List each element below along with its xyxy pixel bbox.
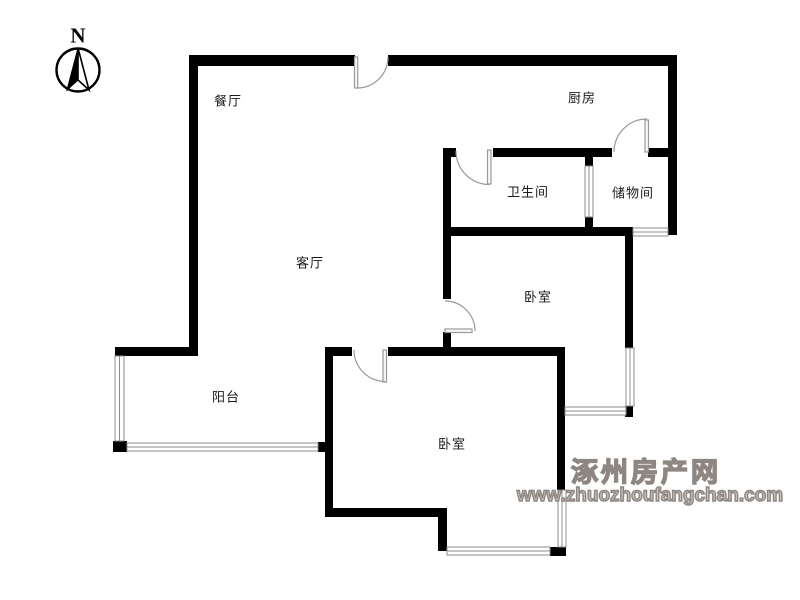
wall-balcony-top bbox=[115, 347, 198, 356]
door-storage bbox=[614, 119, 649, 152]
north-arrow-icon bbox=[57, 48, 100, 92]
wall-bedroom2-corner-br bbox=[550, 547, 566, 556]
room-label-bedroom-lower: 卧室 bbox=[438, 434, 466, 453]
door-bedroom-upper bbox=[445, 301, 475, 333]
wall-left bbox=[189, 55, 198, 356]
wall-bath-bottom bbox=[443, 227, 633, 236]
wall-central-upper bbox=[443, 148, 451, 299]
wall-balcony-corner-br bbox=[318, 442, 333, 452]
wall-bedroom2-step bbox=[438, 508, 447, 551]
window-bedroom1-right bbox=[626, 348, 634, 406]
window-bath-divider bbox=[585, 166, 593, 217]
wall-top-left bbox=[189, 55, 355, 66]
wall-bedroom2-bottom bbox=[325, 508, 447, 517]
door-entry bbox=[355, 57, 389, 88]
window-balcony-left bbox=[115, 356, 124, 441]
door-bathroom bbox=[456, 150, 491, 185]
room-label-bedroom-upper: 卧室 bbox=[524, 287, 552, 306]
window-bedroom2-bottom bbox=[447, 547, 550, 555]
room-label-kitchen: 厨房 bbox=[568, 88, 596, 107]
room-label-bathroom: 卫生间 bbox=[507, 182, 549, 201]
wall-bath-top-c bbox=[648, 148, 668, 157]
room-label-balcony: 阳台 bbox=[212, 387, 240, 406]
compass-needle-left bbox=[67, 48, 78, 90]
room-label-storage: 储物间 bbox=[612, 183, 654, 202]
wall-bath-top-b bbox=[493, 148, 612, 157]
wall-bedroom2-left bbox=[325, 347, 333, 517]
wall-bedroom2-right bbox=[557, 347, 565, 490]
floorplan-canvas: N 餐厅 厨房 卫生间 储物间 客厅 卧室 阳台 卧室 涿州房产网 www.zh… bbox=[0, 0, 800, 600]
wall-right-kitchen bbox=[668, 55, 677, 235]
window-balcony-bottom bbox=[127, 443, 318, 451]
wall-top-right bbox=[388, 55, 677, 66]
door-bedroom-lower bbox=[354, 350, 387, 382]
wall-balcony-corner-bl bbox=[113, 441, 127, 452]
compass-needle-right bbox=[78, 48, 89, 90]
window-right-step bbox=[565, 407, 626, 415]
wall-bedroom1-right bbox=[625, 227, 633, 348]
wall-bedroom2-top-b bbox=[388, 347, 565, 356]
window-storage-right bbox=[633, 228, 668, 236]
watermark-site-name: 涿州房产网 bbox=[571, 451, 721, 490]
wall-bath-divider-top bbox=[585, 148, 593, 166]
room-label-dining: 餐厅 bbox=[214, 91, 242, 110]
north-label: N bbox=[70, 24, 85, 49]
watermark-site-url: www.zhuozhoufangchan.com bbox=[517, 485, 783, 507]
doors bbox=[354, 57, 649, 382]
floorplan-drawing bbox=[0, 0, 800, 600]
room-label-living: 客厅 bbox=[296, 253, 324, 272]
